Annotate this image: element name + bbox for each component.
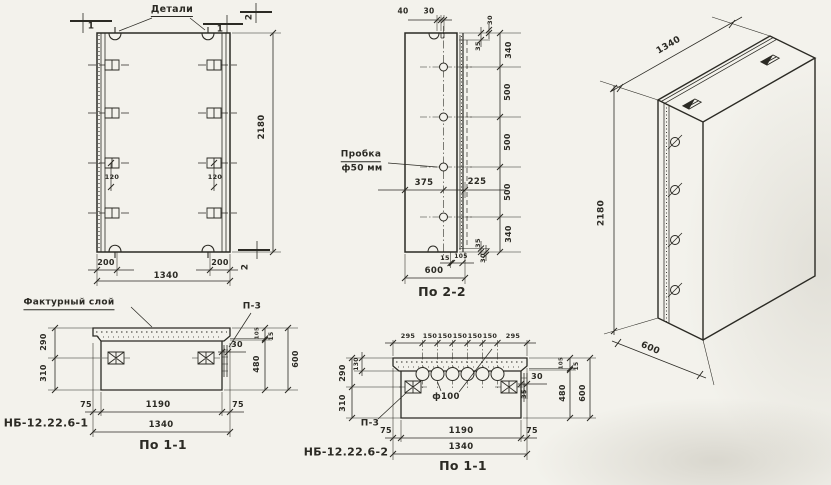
plug-icon — [440, 113, 448, 121]
section-1-1-type-1-view — [48, 307, 298, 437]
plug-icon — [440, 213, 448, 221]
plug-icon — [440, 63, 448, 71]
anchor-insert-icon — [105, 60, 221, 218]
isometric-view — [600, 17, 815, 385]
void-hole-icon — [416, 368, 429, 381]
void-hole-icon — [476, 368, 489, 381]
callout-leader-line — [378, 349, 492, 419]
dimension-tick — [94, 30, 276, 284]
section-cut-mark — [70, 12, 272, 250]
section-2-2-view — [378, 15, 521, 284]
detail-leader-line — [119, 18, 205, 31]
drawing-linework — [0, 0, 831, 485]
blueprint-canvas: Детали112212012020013402002180 403030353… — [0, 0, 831, 485]
dimension-tick — [402, 17, 503, 281]
front-view — [70, 3, 281, 286]
anchor-insert-icon — [108, 352, 214, 364]
lifting-loop-icon — [109, 27, 214, 258]
section-1-1-type-2-view — [346, 340, 596, 460]
void-hole-icon — [446, 368, 459, 381]
void-hole-icon — [461, 368, 474, 381]
plug-leader-line — [388, 163, 437, 167]
lifting-loop-icon — [428, 33, 439, 252]
void-hole-icon — [431, 368, 444, 381]
void-hole-icon — [491, 368, 504, 381]
plug-icon — [440, 163, 448, 171]
